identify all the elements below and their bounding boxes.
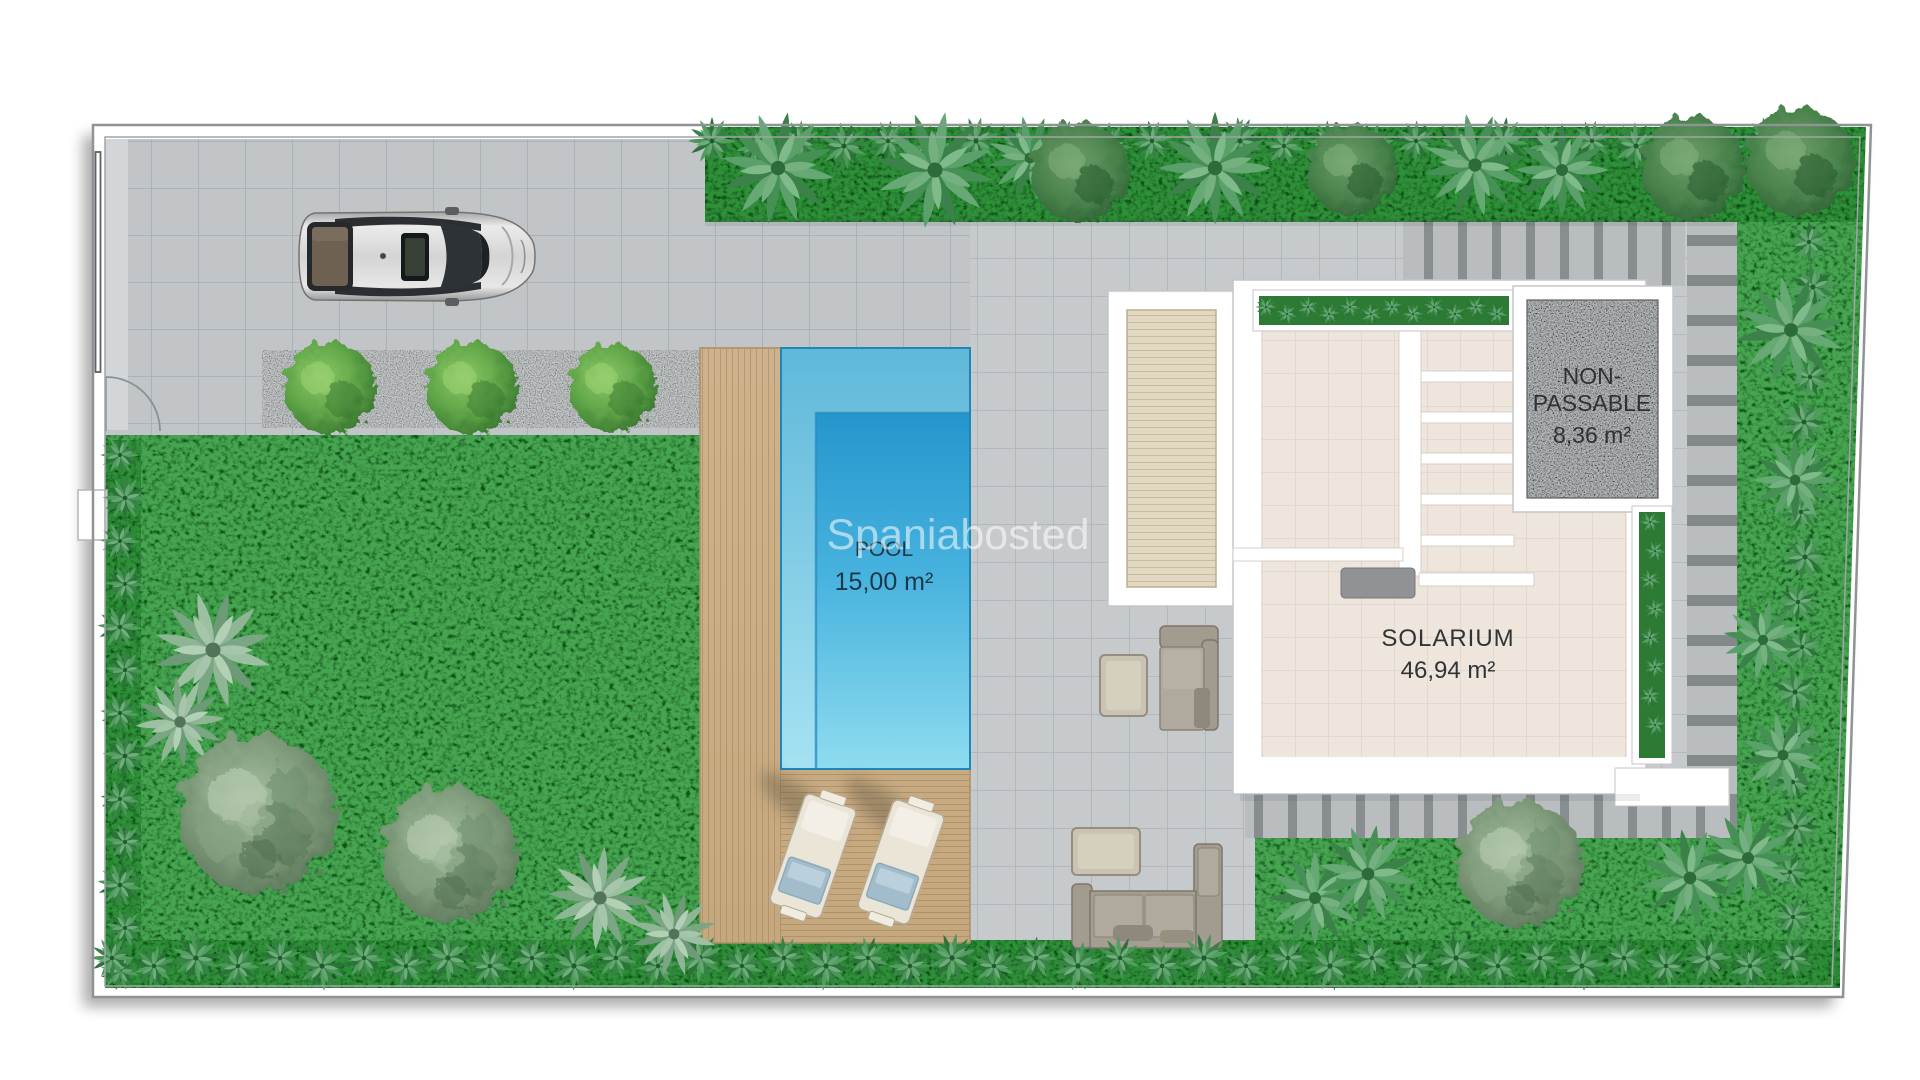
svg-text:46,94 m²: 46,94 m² (1401, 657, 1496, 684)
svg-text:8,36 m²: 8,36 m² (1553, 422, 1631, 448)
svg-text:Spaniabosted: Spaniabosted (827, 511, 1090, 559)
svg-text:NON-: NON- (1563, 363, 1622, 389)
svg-text:SOLARIUM: SOLARIUM (1381, 625, 1514, 652)
svg-text:PASSABLE: PASSABLE (1533, 390, 1651, 416)
svg-text:15,00 m²: 15,00 m² (835, 568, 934, 596)
